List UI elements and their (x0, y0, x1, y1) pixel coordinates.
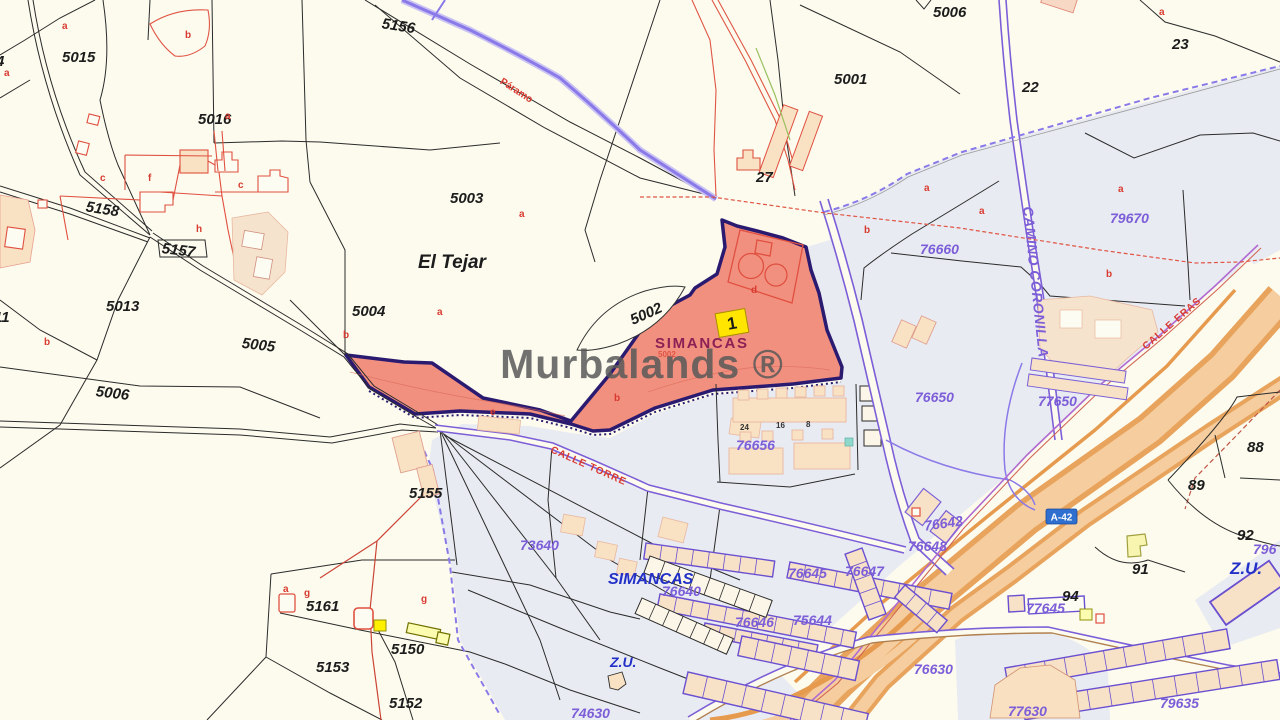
svg-text:h: h (196, 224, 202, 235)
svg-text:76647: 76647 (845, 563, 885, 579)
svg-text:b: b (343, 330, 349, 341)
svg-text:89: 89 (1188, 477, 1205, 494)
svg-text:b: b (864, 225, 870, 236)
svg-text:77650: 77650 (1038, 393, 1077, 409)
svg-text:76650: 76650 (915, 389, 954, 405)
svg-text:5152: 5152 (389, 695, 423, 712)
svg-text:c: c (100, 173, 106, 184)
svg-text:A-42: A-42 (1051, 513, 1073, 524)
svg-text:92: 92 (1237, 527, 1254, 544)
svg-text:5013: 5013 (106, 298, 140, 315)
svg-text:b: b (1106, 269, 1112, 280)
svg-text:5150: 5150 (391, 641, 425, 658)
svg-text:El Tejar: El Tejar (418, 252, 488, 273)
svg-text:a: a (437, 307, 443, 318)
svg-text:796: 796 (1253, 541, 1277, 557)
svg-text:Z.U.: Z.U. (609, 654, 636, 670)
svg-text:Z.U.: Z.U. (1229, 559, 1262, 578)
svg-text:b: b (185, 30, 191, 41)
svg-text:22: 22 (1021, 79, 1039, 96)
svg-text:77645: 77645 (1026, 600, 1065, 616)
svg-text:75644: 75644 (793, 612, 832, 628)
svg-text:a: a (1118, 184, 1124, 195)
svg-text:5003: 5003 (450, 190, 484, 207)
svg-text:76646: 76646 (735, 614, 774, 630)
svg-text:e: e (490, 407, 496, 418)
svg-text:c: c (238, 180, 244, 191)
svg-text:a: a (225, 111, 231, 122)
svg-text:76660: 76660 (920, 241, 959, 257)
svg-text:b: b (614, 393, 620, 404)
svg-text:8: 8 (806, 420, 811, 429)
svg-text:g: g (421, 594, 427, 605)
svg-text:a: a (283, 584, 289, 595)
svg-text:74630: 74630 (571, 705, 610, 720)
svg-text:16: 16 (776, 421, 785, 430)
svg-text:5161: 5161 (306, 598, 339, 615)
svg-text:5004: 5004 (352, 303, 386, 320)
svg-text:5015: 5015 (62, 49, 96, 66)
svg-text:88: 88 (1247, 439, 1264, 456)
svg-text:a: a (1159, 7, 1165, 18)
svg-text:11: 11 (0, 309, 10, 326)
svg-text:d: d (751, 285, 757, 296)
svg-text:24: 24 (740, 423, 749, 432)
svg-text:5153: 5153 (316, 659, 350, 676)
svg-text:SIMANCAS: SIMANCAS (608, 571, 694, 588)
svg-text:Murbalands ®: Murbalands ® (500, 341, 784, 387)
svg-text:27: 27 (755, 169, 773, 186)
svg-text:a: a (924, 183, 930, 194)
svg-text:91: 91 (1132, 561, 1149, 578)
svg-text:76648: 76648 (908, 538, 947, 554)
svg-text:a: a (979, 206, 985, 217)
svg-text:a: a (4, 68, 10, 79)
svg-text:a: a (519, 209, 525, 220)
svg-text:b: b (44, 337, 50, 348)
svg-text:79670: 79670 (1110, 210, 1149, 226)
svg-text:73640: 73640 (520, 537, 559, 553)
svg-text:5155: 5155 (409, 485, 443, 502)
svg-text:23: 23 (1171, 36, 1189, 53)
svg-text:a: a (62, 21, 68, 32)
svg-text:5001: 5001 (834, 71, 867, 88)
svg-text:77630: 77630 (1008, 703, 1047, 719)
svg-text:79635: 79635 (1160, 695, 1199, 711)
svg-text:76656: 76656 (736, 437, 775, 453)
svg-text:g: g (304, 588, 310, 599)
svg-text:5006: 5006 (933, 4, 967, 21)
svg-text:76645: 76645 (788, 565, 827, 581)
svg-text:76630: 76630 (914, 661, 953, 677)
